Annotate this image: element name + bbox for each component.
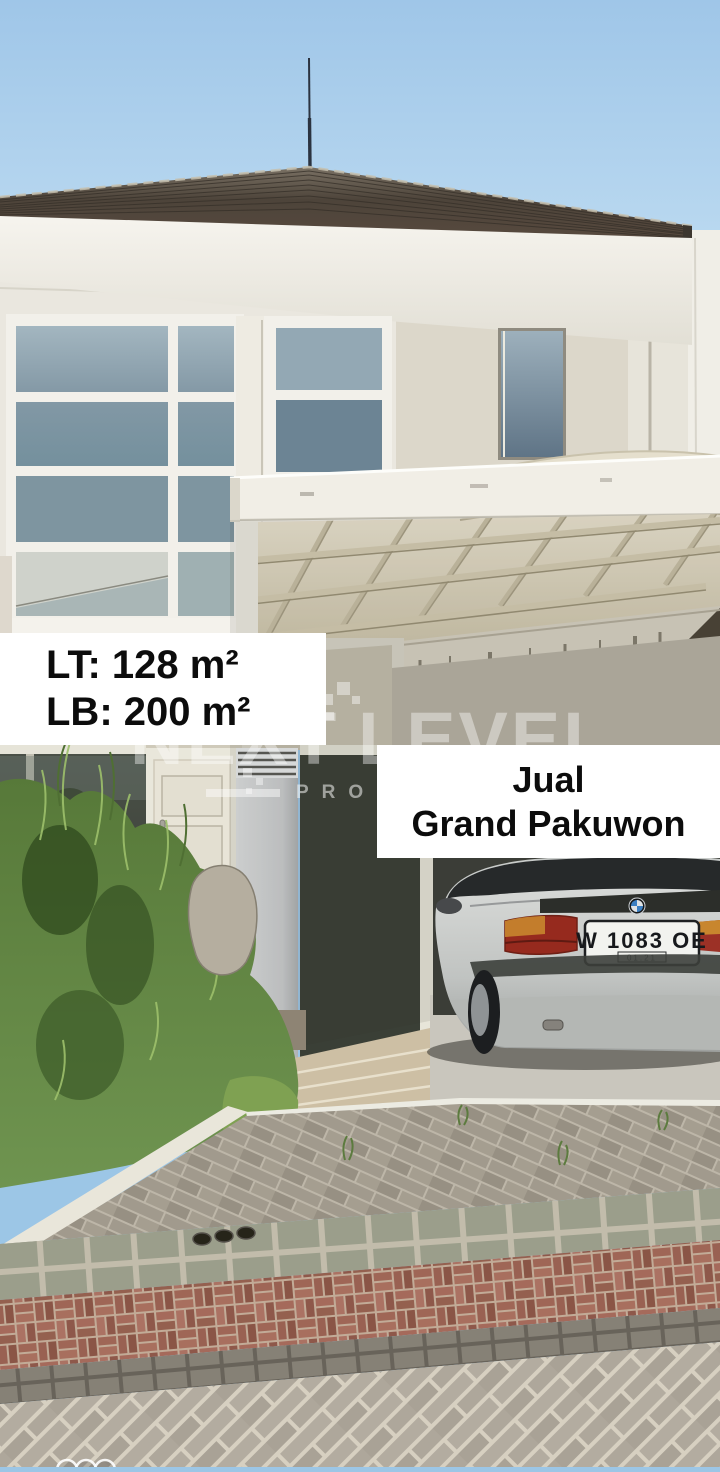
narrow-window <box>498 328 566 460</box>
watermark-pixel-icon <box>256 778 263 785</box>
upper-window-right <box>264 316 392 476</box>
wheel-alloy <box>471 984 489 1036</box>
watermark-underline-bar <box>206 789 280 797</box>
lawn-rock <box>189 866 257 975</box>
side-mirror <box>436 898 462 914</box>
watermark-pixel-icon <box>246 788 252 794</box>
taillight-left <box>505 916 577 955</box>
antenna <box>309 58 310 168</box>
sale-info-box: Jual Grand Pakuwon <box>377 745 720 858</box>
upper-window-grid <box>6 314 244 638</box>
land-area-label: LT: 128 m² <box>46 642 326 689</box>
license-plate-number: W 1083 OE <box>576 928 708 953</box>
watermark-pixel-icon <box>352 696 360 704</box>
listing-photo-page: { "meta": { "type": "real-estate-listing… <box>0 0 720 1467</box>
area-info-box: LT: 128 m² LB: 200 m² <box>0 633 326 745</box>
watermark-pixel-icon <box>326 712 334 720</box>
watermark-pixel-icon <box>337 682 350 695</box>
sale-label-line1: Jual <box>377 758 720 802</box>
building-area-label: LB: 200 m² <box>46 689 326 736</box>
watermark-pixel-icon <box>243 768 252 777</box>
exhaust-tip <box>543 1020 563 1030</box>
cropped-bottom-logo <box>57 1460 115 1467</box>
bmw-roundel-icon <box>629 898 645 914</box>
sale-label-line2: Grand Pakuwon <box>377 802 720 846</box>
right-corner-wall <box>688 230 720 482</box>
